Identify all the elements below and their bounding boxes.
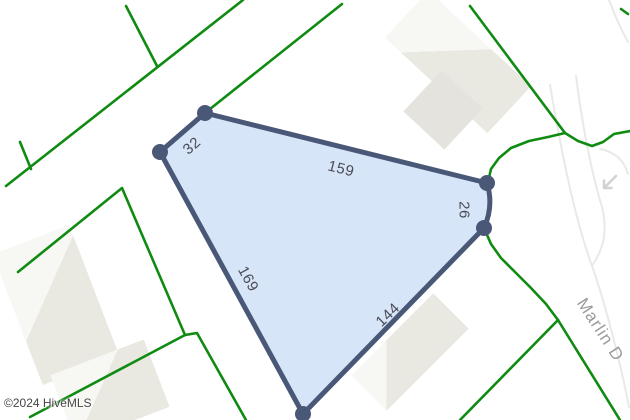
map-vector-layer (0, 0, 630, 420)
one-way-arrow-icon (604, 176, 616, 188)
parcel-map-canvas[interactable]: 32 159 26 169 144 Marlin D ©2024 HiveMLS (0, 0, 630, 420)
parcel-polygon[interactable] (160, 113, 490, 414)
watermark: ©2024 HiveMLS (4, 396, 92, 410)
edge-length-label: 26 (456, 201, 473, 219)
